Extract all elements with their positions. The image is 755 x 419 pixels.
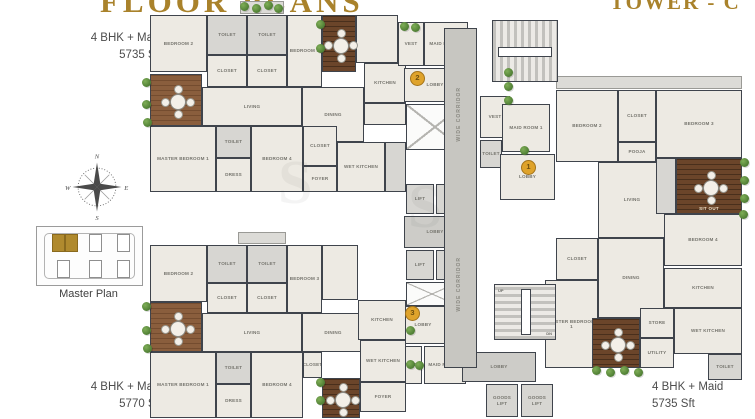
room-label: WET KITCHEN bbox=[365, 357, 401, 365]
plant-icon bbox=[504, 82, 513, 91]
room-toilet: TOILET bbox=[708, 354, 742, 380]
room-unlabeled bbox=[385, 142, 406, 192]
room-master-bedroom-1: MASTER BEDROOM 1 bbox=[150, 352, 216, 418]
deck: SIT OUT bbox=[676, 158, 742, 214]
plant-icon bbox=[520, 146, 529, 155]
plant-icon bbox=[740, 194, 749, 203]
room-toilet: TOILET bbox=[216, 126, 251, 158]
room-closet: CLOSET bbox=[207, 55, 247, 87]
room-maid-room-1: MAID ROOM 1 bbox=[502, 104, 550, 152]
watermark-letter: S bbox=[278, 148, 312, 219]
plant-icon bbox=[504, 96, 513, 105]
deck-chair bbox=[161, 98, 170, 107]
plant-icon bbox=[400, 22, 409, 31]
room-label: TOILET bbox=[224, 138, 243, 146]
room-label: LOBBY bbox=[413, 321, 432, 329]
room-toilet: TOILET bbox=[480, 140, 502, 168]
plant-icon bbox=[316, 396, 325, 405]
plant-icon bbox=[620, 366, 629, 375]
stair-landing bbox=[521, 289, 530, 334]
room-label: TOILET bbox=[224, 364, 243, 372]
room-label: TOILET bbox=[217, 31, 236, 39]
deck-table bbox=[170, 321, 186, 337]
room-label: BEDROOM 2 bbox=[163, 40, 195, 48]
deck-chair bbox=[339, 383, 348, 392]
stair-up-label: UP bbox=[498, 288, 504, 293]
room-kitchen: KITCHEN bbox=[664, 268, 742, 308]
room-living: LIVING bbox=[202, 313, 302, 352]
deck bbox=[150, 302, 202, 352]
room-kitchen: KITCHEN bbox=[364, 63, 406, 103]
room-foyer: FOYER bbox=[360, 382, 406, 412]
plant-icon bbox=[415, 361, 424, 370]
room-label: KITCHEN bbox=[373, 79, 397, 87]
deck-table bbox=[335, 392, 351, 408]
deck-chair bbox=[161, 325, 170, 334]
room-utility: UTILITY bbox=[640, 338, 674, 368]
deck-table bbox=[333, 38, 349, 54]
room-bedroom-4: BEDROOM 4 bbox=[251, 352, 303, 418]
room-toilet: TOILET bbox=[207, 245, 247, 283]
deck-chair bbox=[614, 328, 623, 337]
deck bbox=[322, 15, 356, 72]
room-label: VEST bbox=[404, 40, 419, 48]
room-label: CLOSET bbox=[256, 67, 278, 75]
plant-icon bbox=[142, 100, 151, 109]
room-closet: CLOSET bbox=[207, 283, 247, 313]
room-unlabeled bbox=[322, 245, 358, 300]
room-goods-lift: GOODS LIFT bbox=[521, 384, 553, 417]
room-bedroom-3: BEDROOM 3 bbox=[287, 245, 322, 313]
plant-icon bbox=[504, 68, 513, 77]
room-lift: LIFT bbox=[406, 250, 434, 280]
room-label: MAID ROOM 1 bbox=[508, 124, 543, 132]
room-label: BEDROOM 3 bbox=[683, 120, 715, 128]
deck-chair bbox=[694, 184, 703, 193]
plant-icon bbox=[592, 366, 601, 375]
room-toilet: TOILET bbox=[207, 15, 247, 55]
watermark-letter: S bbox=[408, 172, 442, 243]
room-label: TOILET bbox=[257, 31, 276, 39]
room-label: WET KITCHEN bbox=[343, 163, 379, 171]
staircase bbox=[492, 20, 558, 82]
room-store: STORE bbox=[640, 308, 674, 338]
room-closet: CLOSET bbox=[303, 352, 322, 378]
room-label: GOODS LIFT bbox=[487, 394, 517, 407]
deck-chair bbox=[337, 29, 346, 38]
room-dress: DRESS bbox=[216, 384, 251, 418]
stair-dn-label: DN bbox=[546, 331, 552, 336]
deck bbox=[322, 378, 360, 418]
plant-icon bbox=[740, 158, 749, 167]
unit-number-marker: 1 bbox=[521, 160, 536, 175]
deck-chair bbox=[339, 408, 348, 417]
deck-chair bbox=[174, 85, 183, 94]
room-label: LIVING bbox=[623, 196, 642, 204]
room-pooja: POOJA bbox=[618, 142, 656, 162]
deck-chair bbox=[174, 110, 183, 119]
room-label: BEDROOM 4 bbox=[687, 236, 719, 244]
deck-chair bbox=[324, 41, 333, 50]
room-unlabeled bbox=[356, 15, 398, 63]
plant-icon bbox=[143, 118, 152, 127]
room-bedroom-2: BEDROOM 2 bbox=[556, 90, 618, 162]
deck-chair bbox=[707, 171, 716, 180]
room-label: VEST bbox=[488, 113, 503, 121]
room-wet-kitchen: WET KITCHEN bbox=[674, 308, 742, 354]
plant-icon bbox=[142, 326, 151, 335]
stair-landing bbox=[498, 47, 552, 56]
unit-number-marker: 2 bbox=[410, 71, 425, 86]
deck-chair bbox=[186, 98, 195, 107]
room-label: LOBBY bbox=[489, 363, 508, 371]
deck-chair bbox=[326, 396, 335, 405]
room-label: MASTER BEDROOM 1 bbox=[156, 381, 210, 389]
room-label: LIVING bbox=[243, 329, 262, 337]
room-label: DINING bbox=[323, 329, 342, 337]
room-label: BEDROOM 2 bbox=[571, 122, 603, 130]
plant-icon bbox=[740, 176, 749, 185]
deck-chair bbox=[614, 353, 623, 362]
plant-icon bbox=[143, 344, 152, 353]
room-label: KITCHEN bbox=[691, 284, 715, 292]
corridor-label: WIDE CORRIDOR bbox=[456, 257, 462, 312]
room-bedroom-3: BEDROOM 3 bbox=[656, 90, 742, 158]
room-label: CLOSET bbox=[626, 112, 648, 120]
room-unlabeled bbox=[364, 103, 406, 125]
room-label: CLOSET bbox=[216, 67, 238, 75]
deck-table bbox=[703, 180, 719, 196]
plant-icon bbox=[142, 302, 151, 311]
room-dining: DINING bbox=[598, 238, 664, 318]
room-label: FOYER bbox=[311, 175, 330, 183]
plant-icon bbox=[316, 44, 325, 53]
deck-chair bbox=[707, 196, 716, 205]
room-label: TOILET bbox=[217, 260, 236, 268]
room-label: DRESS bbox=[224, 171, 243, 179]
plant-icon bbox=[252, 4, 261, 13]
deck-label: SIT OUT bbox=[699, 206, 719, 211]
deck-chair bbox=[174, 337, 183, 346]
room-label: FOYER bbox=[374, 393, 393, 401]
room-wet-kitchen: WET KITCHEN bbox=[337, 142, 385, 192]
room-label: DRESS bbox=[224, 397, 243, 405]
room-toilet: TOILET bbox=[247, 245, 287, 283]
room-label: DINING bbox=[621, 274, 640, 282]
ac-ledge bbox=[556, 76, 742, 89]
deck-table bbox=[610, 337, 626, 353]
deck-chair bbox=[626, 341, 635, 350]
floor-plan-drawing: BEDROOM 2TOILETCLOSETTOILETCLOSETBEDROOM… bbox=[0, 0, 755, 419]
room-kitchen: KITCHEN bbox=[358, 300, 406, 340]
room-label: TOILET bbox=[715, 363, 734, 371]
deck-chair bbox=[351, 396, 360, 405]
room-label: DINING bbox=[323, 111, 342, 119]
unit-number-marker: 3 bbox=[405, 306, 420, 321]
deck bbox=[592, 318, 640, 368]
room-bedroom-2: BEDROOM 2 bbox=[150, 245, 207, 302]
room-label: TOILET bbox=[257, 260, 276, 268]
plant-icon bbox=[316, 20, 325, 29]
corridor: WIDE CORRIDORWIDE CORRIDOR bbox=[444, 28, 477, 368]
deck-chair bbox=[186, 325, 195, 334]
room-label: CLOSET bbox=[216, 294, 238, 302]
deck bbox=[150, 74, 202, 126]
plant-icon bbox=[264, 1, 273, 10]
room-toilet: TOILET bbox=[216, 352, 251, 384]
room-bedroom-4: BEDROOM 4 bbox=[664, 214, 742, 266]
room-label: CLOSET bbox=[566, 255, 588, 263]
room-bedroom-2: BEDROOM 2 bbox=[150, 15, 207, 72]
room-wet-kitchen: WET KITCHEN bbox=[360, 340, 406, 382]
corridor-label: WIDE CORRIDOR bbox=[456, 87, 462, 142]
room-dining: DINING bbox=[302, 313, 364, 352]
deck-chair bbox=[719, 184, 728, 193]
room-label: KITCHEN bbox=[370, 316, 394, 324]
room-label: BEDROOM 3 bbox=[289, 275, 321, 283]
room-label: LIFT bbox=[414, 261, 427, 269]
plant-icon bbox=[240, 2, 249, 11]
plant-icon bbox=[634, 368, 643, 377]
room-label: LOBBY bbox=[425, 81, 444, 89]
room-closet: CLOSET bbox=[556, 238, 598, 280]
plant-icon bbox=[606, 368, 615, 377]
room-label: TOILET bbox=[481, 150, 500, 158]
room-goods-lift: GOODS LIFT bbox=[486, 384, 518, 417]
room-closet: CLOSET bbox=[618, 90, 656, 142]
room-unlabeled bbox=[656, 158, 676, 214]
deck-chair bbox=[349, 41, 358, 50]
plant-icon bbox=[739, 210, 748, 219]
plant-icon bbox=[274, 4, 283, 13]
room-closet: CLOSET bbox=[247, 55, 287, 87]
deck-table bbox=[170, 94, 186, 110]
room-label: CLOSET bbox=[256, 294, 278, 302]
deck-chair bbox=[174, 312, 183, 321]
plant-icon bbox=[406, 360, 415, 369]
room-closet: CLOSET bbox=[247, 283, 287, 313]
room-toilet: TOILET bbox=[247, 15, 287, 55]
room-living: LIVING bbox=[202, 87, 302, 126]
room-master-bedroom-1: MASTER BEDROOM 1 bbox=[150, 126, 216, 192]
room-label: STORE bbox=[648, 319, 667, 327]
plant-icon bbox=[411, 23, 420, 32]
ac-ledge bbox=[238, 232, 286, 244]
plant-icon bbox=[142, 78, 151, 87]
room-label: CLOSET bbox=[303, 361, 322, 369]
staircase: UPDN bbox=[494, 284, 556, 340]
room-label: LIVING bbox=[243, 103, 262, 111]
deck-chair bbox=[337, 54, 346, 63]
room-dress: DRESS bbox=[216, 158, 251, 192]
plant-icon bbox=[316, 378, 325, 387]
deck-chair bbox=[601, 341, 610, 350]
room-label: UTILITY bbox=[647, 349, 668, 357]
room-label: WET KITCHEN bbox=[690, 327, 726, 335]
room-label: BEDROOM 2 bbox=[163, 270, 195, 278]
plant-icon bbox=[406, 326, 415, 335]
room-label: BEDROOM 4 bbox=[261, 381, 293, 389]
room-label: GOODS LIFT bbox=[522, 394, 552, 407]
room-label: MASTER BEDROOM 1 bbox=[156, 155, 210, 163]
floorplan-page: FLOOR PLANS TOWER - C 4 BHK + Maid 5735 … bbox=[0, 0, 755, 419]
room-label: POOJA bbox=[627, 148, 646, 156]
